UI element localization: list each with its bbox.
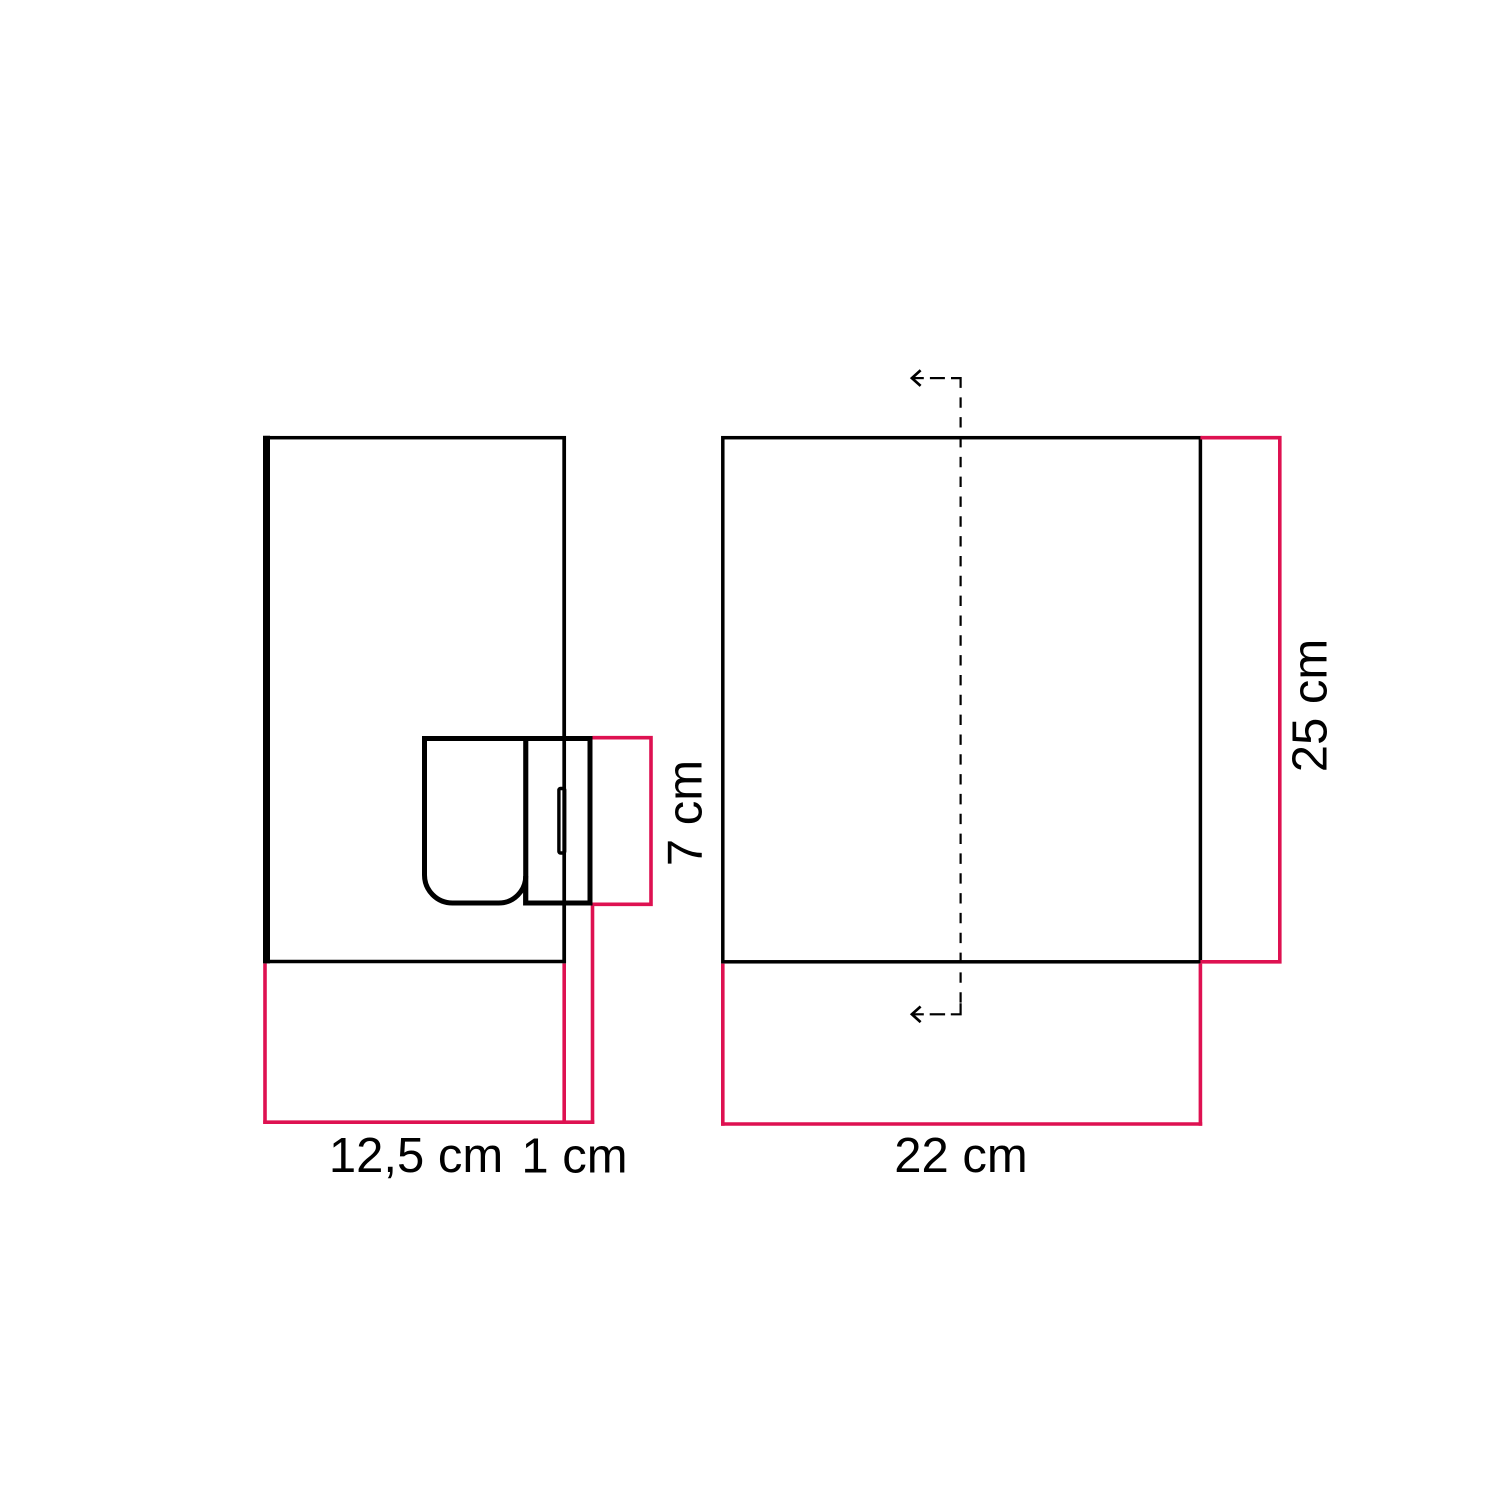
- svg-text:7 cm: 7 cm: [659, 760, 713, 866]
- svg-text:1 cm: 1 cm: [521, 1130, 627, 1184]
- svg-text:22 cm: 22 cm: [894, 1129, 1027, 1183]
- svg-text:25 cm: 25 cm: [1284, 639, 1338, 772]
- svg-text:12,5 cm: 12,5 cm: [329, 1129, 503, 1183]
